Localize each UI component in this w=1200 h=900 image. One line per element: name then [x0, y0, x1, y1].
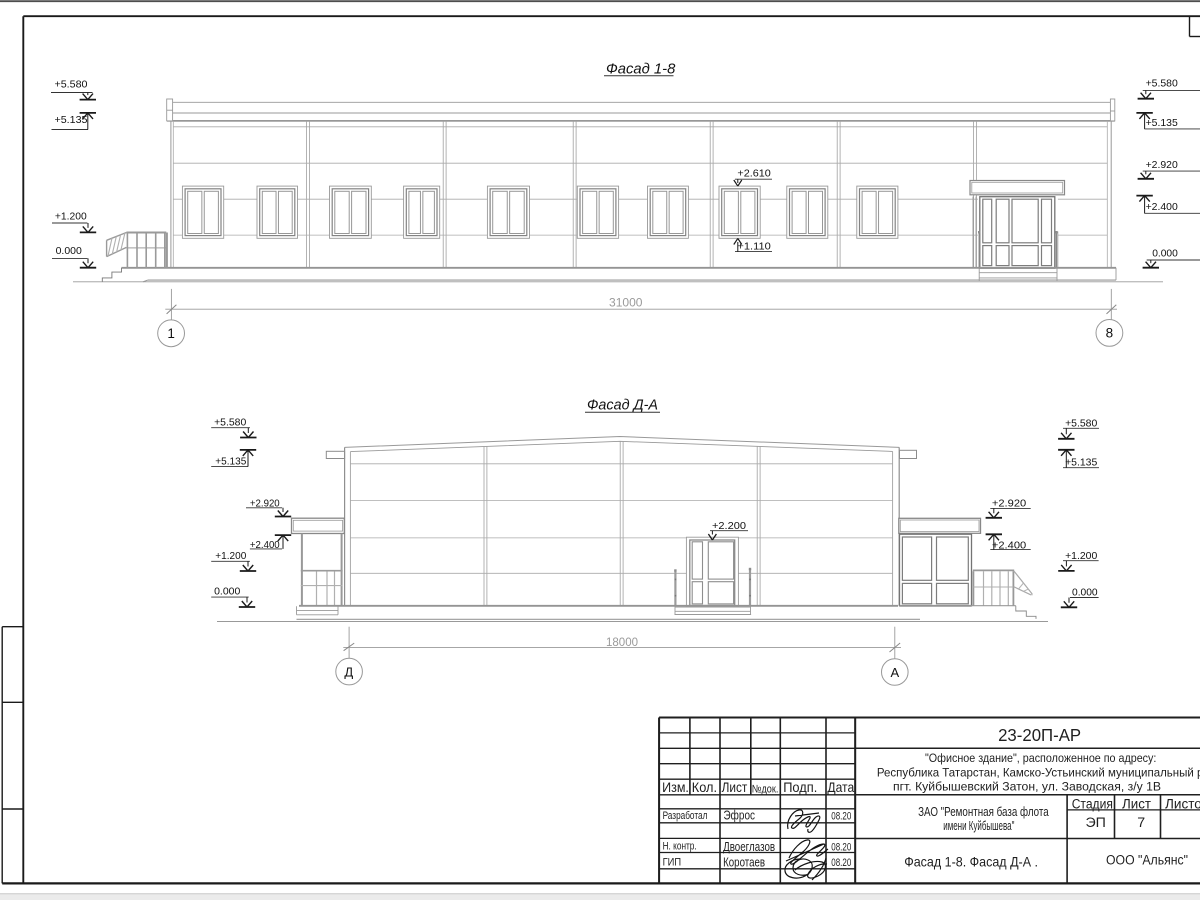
svg-text:Н. контр.: Н. контр.: [663, 841, 697, 853]
svg-text:Республика Татарстан, Камско-У: Республика Татарстан, Камско-Устьинский …: [877, 765, 1200, 779]
svg-text:08.20: 08.20: [831, 810, 851, 822]
svg-text:08.20: 08.20: [831, 841, 851, 853]
svg-text:Разработал: Разработал: [663, 810, 708, 822]
svg-text:Лист: Лист: [722, 780, 748, 795]
svg-text:+2.400: +2.400: [1146, 201, 1178, 213]
svg-text:31000: 31000: [609, 298, 643, 310]
svg-text:+5.135: +5.135: [55, 114, 88, 126]
svg-text:Фасад 1-8: Фасад 1-8: [606, 60, 676, 77]
svg-text:Коротаев: Коротаев: [723, 855, 765, 869]
svg-text:Дата: Дата: [827, 780, 854, 795]
svg-text:Стадия: Стадия: [1072, 796, 1113, 812]
svg-text:№док.: №док.: [752, 784, 779, 796]
svg-text:Фасад Д-А: Фасад Д-А: [587, 397, 658, 414]
svg-text:Подп.: Подп.: [783, 780, 817, 795]
svg-text:0.000: 0.000: [56, 245, 82, 257]
svg-text:Листов: Листов: [1165, 796, 1200, 812]
svg-text:Фасад 1-8. Фасад Д-А .: Фасад 1-8. Фасад Д-А .: [904, 855, 1038, 870]
svg-text:+5.135: +5.135: [1065, 456, 1097, 468]
svg-text:+2.200: +2.200: [712, 520, 746, 532]
svg-text:Кол.: Кол.: [692, 780, 717, 795]
svg-text:+2.610: +2.610: [737, 168, 771, 180]
svg-text:+1.200: +1.200: [55, 211, 87, 223]
svg-text:Изм.: Изм.: [662, 780, 689, 795]
svg-text:+5.135: +5.135: [215, 456, 246, 468]
svg-text:ЭП: ЭП: [1085, 815, 1105, 831]
svg-text:Двоеглазов: Двоеглазов: [723, 840, 775, 854]
svg-text:+5.580: +5.580: [214, 416, 246, 428]
svg-text:+1.110: +1.110: [737, 240, 771, 252]
svg-text:ООО "Альянс": ООО "Альянс": [1106, 853, 1188, 868]
svg-text:23-20П-АР: 23-20П-АР: [998, 725, 1081, 745]
svg-text:7: 7: [1137, 815, 1145, 831]
svg-text:Эфрос: Эфрос: [724, 809, 756, 823]
svg-text:8: 8: [1106, 326, 1114, 341]
svg-text:+5.135: +5.135: [1146, 117, 1178, 129]
svg-text:пгт. Куйбышевский Затон, ул. З: пгт. Куйбышевский Затон, ул. Заводская, …: [893, 779, 1161, 793]
svg-text:+2.920: +2.920: [250, 497, 280, 509]
svg-text:+5.580: +5.580: [55, 78, 88, 90]
svg-text:+2.920: +2.920: [1146, 159, 1178, 171]
svg-text:18000: 18000: [606, 637, 638, 649]
svg-text:+2.920: +2.920: [992, 497, 1026, 509]
svg-text:+2.400: +2.400: [250, 539, 280, 551]
svg-text:0.000: 0.000: [1072, 587, 1098, 599]
svg-text:+1.200: +1.200: [1065, 550, 1097, 562]
svg-text:А: А: [890, 665, 899, 680]
svg-text:ЗАО "Ремонтная база флота: ЗАО "Ремонтная база флота: [918, 805, 1049, 819]
svg-text:+1.200: +1.200: [215, 550, 246, 562]
svg-text:0.000: 0.000: [1152, 248, 1178, 260]
svg-text:"Офисное здание", расположенно: "Офисное здание", расположенное по адрес…: [925, 751, 1156, 765]
svg-text:+2.400: +2.400: [992, 540, 1026, 552]
svg-text:+5.580: +5.580: [1146, 78, 1178, 90]
svg-text:08.20: 08.20: [831, 857, 851, 869]
svg-text:ГИП: ГИП: [663, 856, 682, 868]
svg-text:+5.580: +5.580: [1065, 417, 1097, 429]
svg-text:0.000: 0.000: [214, 586, 240, 598]
svg-text:имени Куйбышева": имени Куйбышева": [943, 819, 1014, 833]
svg-text:Д: Д: [344, 664, 353, 679]
svg-text:1: 1: [167, 326, 175, 341]
svg-text:Лист: Лист: [1122, 796, 1151, 812]
